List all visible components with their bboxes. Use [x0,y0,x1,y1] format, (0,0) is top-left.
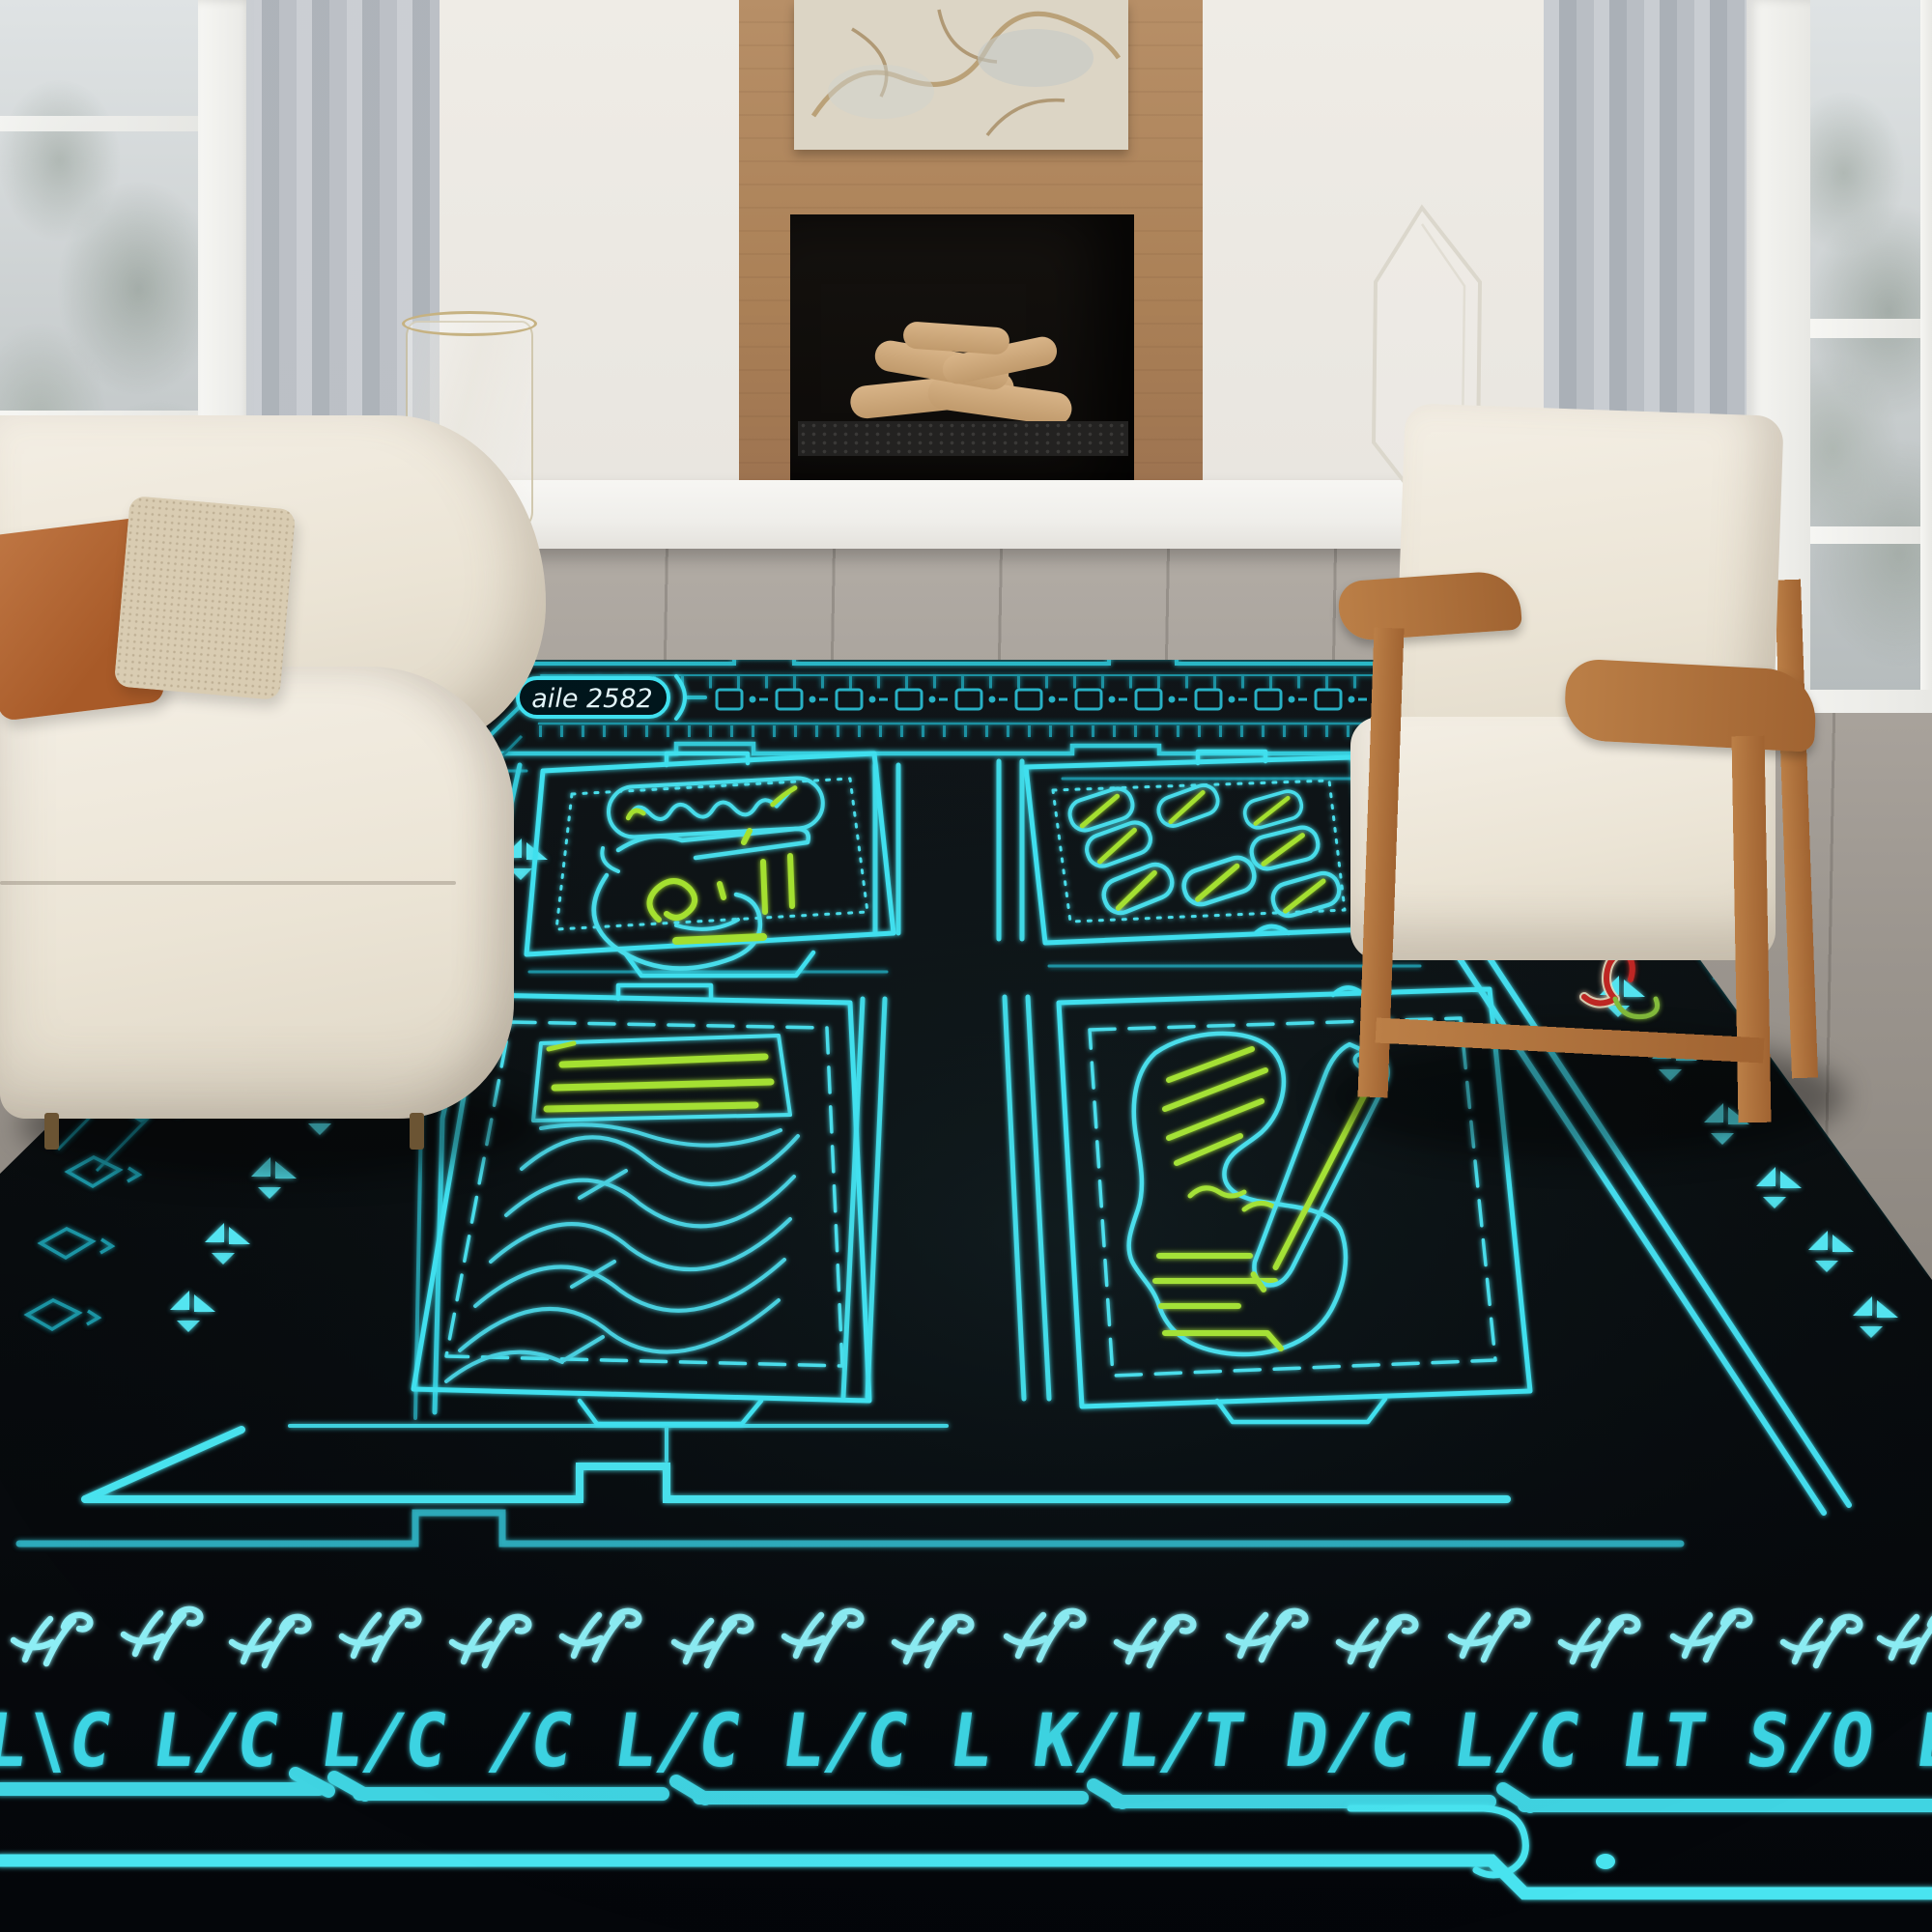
armchair-armrest-left [1337,570,1522,642]
living-room-scene: aile 2582 [0,0,1932,1932]
pillow-beige [114,496,297,700]
armchair-front-right-leg [1732,736,1772,1123]
armchair-seat [1350,717,1776,960]
sofa-leg [44,1113,59,1150]
sofa-leg [410,1113,424,1150]
armchair-armrest-right [1563,658,1818,752]
sofa-seat [0,667,514,1119]
sofa-seam [0,881,456,885]
